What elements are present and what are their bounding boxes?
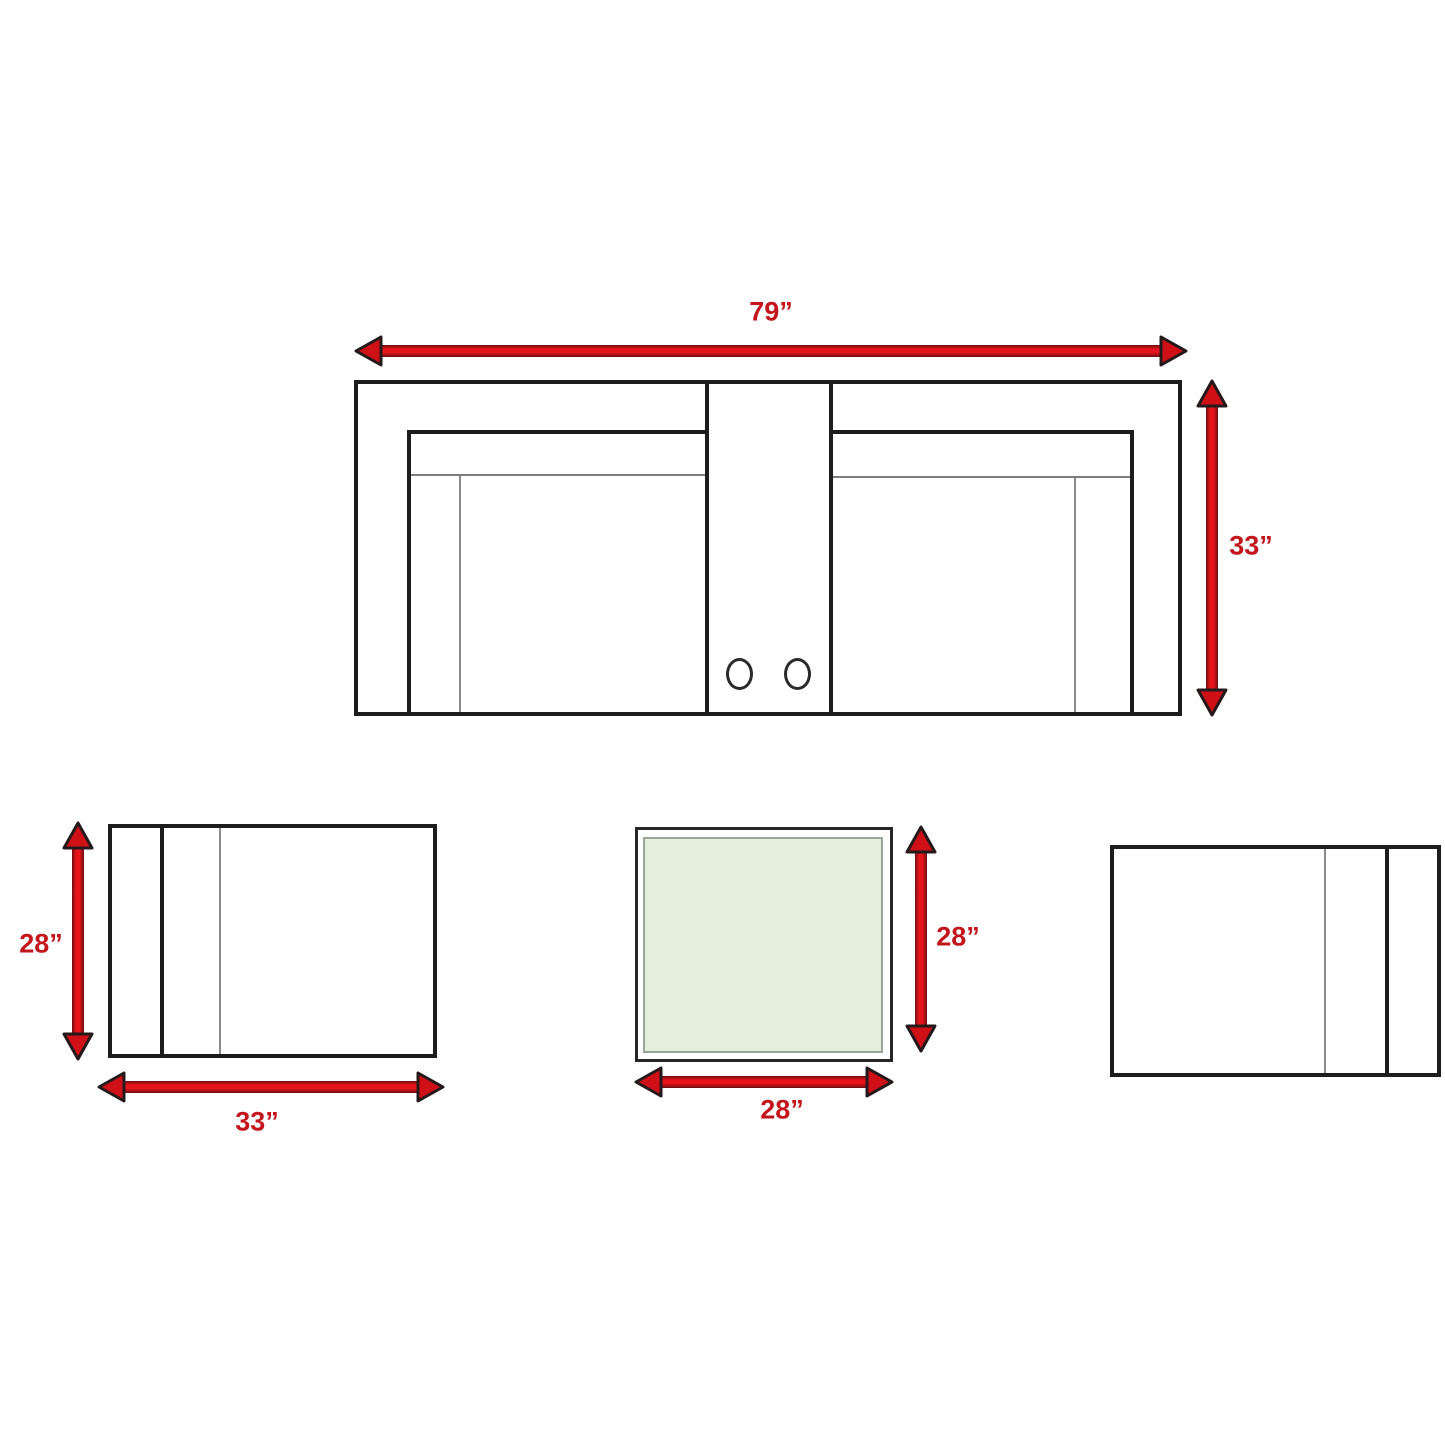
chair-right-arm-line: [1385, 849, 1389, 1073]
chair-left-arm-line: [160, 828, 164, 1054]
sofa-depth-label: 33”: [1229, 533, 1273, 560]
chair-left-depth-label: 28”: [19, 931, 63, 958]
table-width-label: 28”: [760, 1097, 804, 1124]
dimension-arrow-sofa-depth: [1194, 378, 1230, 718]
cup-holder-right-icon: [784, 658, 811, 690]
sofa-right-backrest-line: [833, 430, 1134, 434]
chair-right-cushion-line: [1324, 849, 1326, 1073]
chair-left-outline: [108, 824, 437, 1058]
sofa-left-backrest-line: [407, 430, 705, 434]
dimension-arrow-sofa-width: [353, 333, 1189, 369]
dimension-arrow-table-depth: [903, 824, 939, 1054]
sofa-center-console: [705, 384, 833, 712]
sofa-width-label: 79”: [749, 299, 793, 326]
sofa-right-arm-line: [1130, 430, 1134, 712]
table-glass-top: [643, 837, 883, 1053]
chair-left-width-label: 33”: [235, 1109, 279, 1136]
chair-right-outline: [1110, 845, 1441, 1077]
furniture-dimensions-diagram: 79” 33” 28” 33” 28”: [0, 0, 1445, 1445]
chair-left-cushion-line: [219, 828, 221, 1054]
sofa-left-cushion-line: [459, 476, 461, 712]
sofa-right-cushion-line: [1074, 478, 1076, 712]
sofa-left-seat-front-line: [411, 474, 705, 476]
cup-holder-left-icon: [726, 658, 753, 690]
sofa-left-arm-line: [407, 430, 411, 712]
sofa-right-seat-front-line: [833, 476, 1130, 478]
dimension-arrow-chair-depth: [60, 820, 96, 1062]
dimension-arrow-chair-width: [96, 1069, 446, 1105]
table-depth-label: 28”: [936, 924, 980, 951]
